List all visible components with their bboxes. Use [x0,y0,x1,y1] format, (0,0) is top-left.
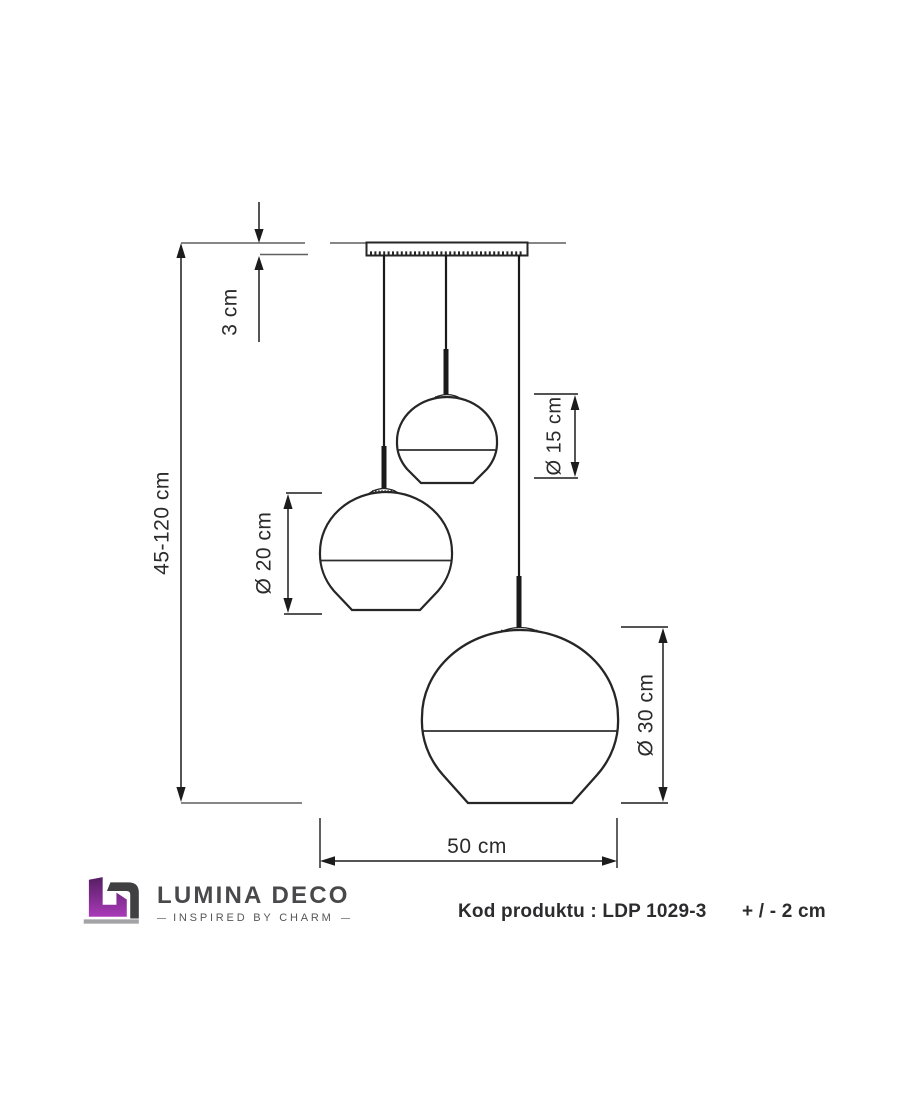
tagline-rule-left [157,918,166,920]
arrow-down-icon [571,462,580,477]
canopy-height-label: 3 cm [219,288,242,336]
dimension-medium-shade: Ø 20 cm [253,493,322,614]
page: 3 cm 45-120 cm Ø 15 cm Ø 20 cm [0,0,915,1109]
product-code-label: Kod produktu : LDP 1029-3 [458,901,707,923]
shade-small [397,395,497,484]
shade-medium [320,489,452,611]
small-shade-diameter-label: Ø 15 cm [543,396,565,475]
brand-logo: LUMINA DECO INSPIRED BY CHARM [82,874,350,932]
medium-shade-diameter-label: Ø 20 cm [253,512,276,595]
shade-large [422,628,618,804]
total-width-label: 50 cm [447,835,507,858]
logo-shadow-bar [84,919,139,923]
arrow-down-icon [254,229,263,243]
suspension-height-label: 45-120 cm [151,471,174,575]
brand-text-block: LUMINA DECO INSPIRED BY CHARM [157,874,350,924]
large-shade-diameter-label: Ø 30 cm [635,674,658,757]
arrow-up-icon [658,628,667,643]
arrow-up-icon [254,256,263,270]
arrow-left-icon [320,856,335,866]
brand-tagline: INSPIRED BY CHARM [173,913,333,924]
dimension-diagram: 3 cm 45-120 cm Ø 15 cm Ø 20 cm [0,0,915,1109]
arrow-up-icon [283,494,292,509]
tagline-rule-right [341,918,350,920]
dimension-total-width: 50 cm [320,818,617,868]
dimension-canopy-height: 3 cm [219,202,264,342]
shade-medium-outline [320,492,452,610]
shade-small-outline [397,397,497,483]
monogram-icon-svg [82,874,144,932]
arrow-down-icon [176,787,185,802]
arrow-up-icon [571,395,580,410]
shade-large-outline [422,630,618,803]
dimension-suspension-height: 45-120 cm [151,243,186,802]
lumina-deco-monogram-icon [82,874,144,932]
arrow-up-icon [176,243,185,258]
dimension-large-shade: Ø 30 cm [621,627,668,803]
tolerance-label: + / - 2 cm [742,901,826,923]
brand-tagline-row: INSPIRED BY CHARM [157,913,350,924]
arrow-down-icon [283,598,292,613]
pendant-fixture [320,243,618,804]
arrow-down-icon [658,787,667,802]
arrow-right-icon [602,856,617,866]
brand-name: LUMINA DECO [157,884,350,908]
dimension-small-shade: Ø 15 cm [534,394,579,478]
